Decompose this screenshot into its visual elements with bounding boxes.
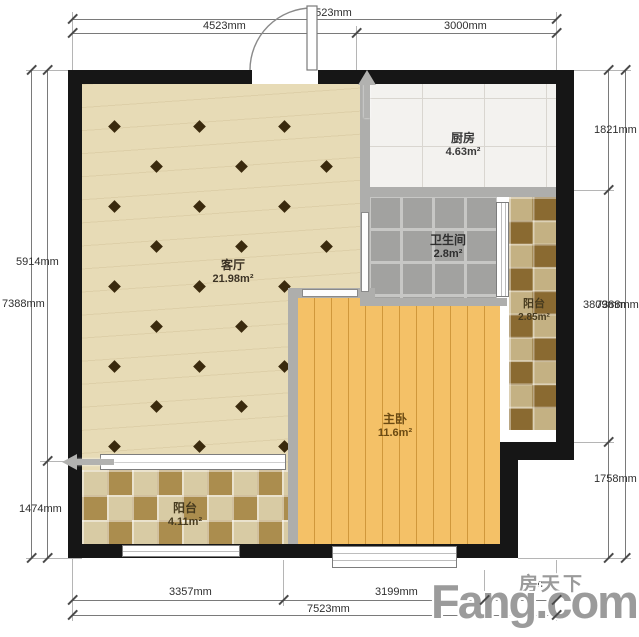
carpet-diamond [108, 120, 121, 133]
ext-line [556, 12, 557, 70]
ext-line [26, 558, 82, 559]
wall-bedroom-left [288, 288, 298, 544]
carpet-diamond [235, 320, 248, 333]
entrance-door-arc [240, 0, 330, 90]
dim-line-left-outer [31, 70, 32, 558]
wall-kitchen-bottom [360, 187, 556, 197]
room-label-kitchen: 厨房4.63m² [446, 131, 481, 160]
wall-top-left [68, 70, 252, 84]
carpet-diamond [235, 400, 248, 413]
carpet-diamond [108, 440, 121, 453]
dim-line-left-inner [47, 70, 48, 558]
carpet-diamond [150, 320, 163, 333]
carpet-diamond [150, 160, 163, 173]
carpet-diamond [193, 120, 206, 133]
carpet-diamond [108, 280, 121, 293]
carpet-diamond [193, 280, 206, 293]
window-balcony-sliding [100, 454, 286, 470]
carpet-diamond [320, 160, 333, 173]
fang-watermark-logo: Fang.com [431, 574, 637, 629]
wall-right-lower [500, 458, 518, 558]
room-label-living: 客厅21.98m² [213, 258, 254, 287]
dim-label-left-seg1: 5914mm [16, 256, 59, 268]
carpet-diamond [235, 240, 248, 253]
ext-line [518, 558, 631, 559]
wall-top-right [318, 70, 574, 84]
room-label-balcony-bottom: 阳台4.11m² [168, 501, 202, 530]
bedroom-door [302, 289, 358, 297]
floorplan-canvas: 7523mm 4523mm 3000mm 5914mm 7388mm 1474m… [0, 0, 639, 637]
room-label-bedroom: 主卧11.6m² [378, 412, 412, 441]
carpet-diamond [150, 240, 163, 253]
window-bedroom-bottom [332, 546, 457, 568]
dim-label-bottom-total: 7523mm [307, 603, 350, 615]
dim-label-right-seg3: 1758mm [594, 473, 637, 485]
wall-right-upper [556, 70, 574, 442]
carpet-diamond [278, 120, 291, 133]
wall-bathroom-bottom [360, 298, 507, 306]
dim-label-right-total: 7388mm [596, 299, 639, 311]
carpet-diamond [193, 360, 206, 373]
carpet-diamond [108, 360, 121, 373]
carpet-diamond [193, 200, 206, 213]
dim-label-top-seg2: 3000mm [444, 20, 487, 32]
dim-label-bottom-seg2: 3199mm [375, 586, 418, 598]
dim-label-left-total: 7388mm [2, 298, 45, 310]
dim-label-right-seg1: 1821mm [594, 124, 637, 136]
carpet-diamond [278, 200, 291, 213]
room-label-balcony-right: 阳台2.85m² [518, 298, 550, 324]
dim-label-left-seg2: 1474mm [19, 503, 62, 515]
room-label-bathroom: 卫生间2.8m² [430, 233, 466, 262]
ext-line [72, 12, 73, 70]
bathroom-door [361, 212, 369, 292]
carpet-diamond [193, 440, 206, 453]
wall-left [68, 70, 82, 558]
carpet-diamond [235, 160, 248, 173]
carpet-diamond [108, 200, 121, 213]
window-bathroom-right [496, 202, 509, 297]
carpet-diamond [150, 400, 163, 413]
carpet-diamond [320, 240, 333, 253]
dim-label-bottom-seg1: 3357mm [169, 586, 212, 598]
window-balcony-bottom [122, 545, 240, 557]
